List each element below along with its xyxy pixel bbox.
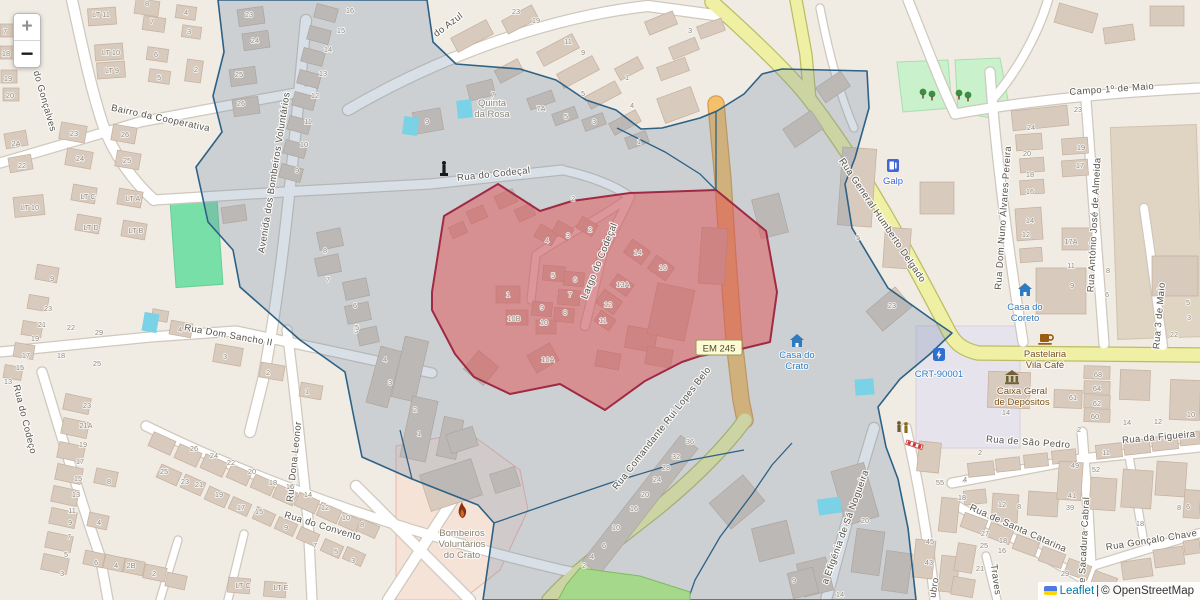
house-number: 5: [581, 89, 585, 98]
house-number: 21: [38, 320, 46, 329]
house-number: 19: [31, 334, 39, 343]
house-number: 18: [2, 49, 10, 58]
house-number: 8: [1017, 502, 1021, 511]
fuel-icon: [887, 159, 899, 172]
house-number: 45: [926, 537, 934, 546]
house-number: 2: [978, 448, 982, 457]
house-number: 5: [564, 112, 568, 121]
house-number: 10B: [507, 314, 520, 323]
water-area: [456, 99, 473, 118]
house-number: 11: [1102, 448, 1110, 457]
statue-icon-part: [442, 165, 445, 173]
house-number: 4: [178, 325, 182, 334]
house-number: 3: [566, 231, 570, 240]
house-number: 1: [506, 290, 510, 299]
house-number: 8: [107, 477, 111, 486]
house-number: 28: [662, 463, 670, 472]
house-number: 15: [337, 26, 345, 35]
house-number: 25: [123, 156, 131, 165]
house-number: 5: [856, 233, 860, 242]
poi-label: Coreto: [1011, 313, 1040, 324]
house-number: 9: [425, 117, 429, 126]
house-number: 3: [592, 117, 596, 126]
house-number: 5: [157, 73, 161, 82]
house-number: 10A: [541, 355, 554, 364]
house-number: 2: [413, 405, 417, 414]
house-number: 21: [976, 564, 984, 573]
house-number: 36: [686, 437, 694, 446]
house-number: 29: [1061, 569, 1069, 578]
house-number: 60: [1091, 412, 1099, 421]
house-number: 3: [688, 26, 692, 35]
map-building: [1150, 6, 1184, 26]
map-building: [1155, 461, 1187, 497]
house-number: 18: [999, 536, 1007, 545]
house-number: LT 9: [105, 66, 119, 75]
house-number: 18: [958, 493, 966, 502]
ukraine-flag-icon: [1044, 586, 1057, 595]
house-number: 5: [551, 271, 555, 280]
house-number: 16: [346, 6, 354, 15]
poi-label: Pastelaria: [1024, 349, 1067, 360]
house-number: 10: [300, 140, 308, 149]
house-number: 8: [563, 308, 567, 317]
house-number: 15: [74, 474, 82, 483]
house-number: 9: [68, 518, 72, 527]
house-number: 23: [512, 7, 520, 16]
house-number: 21: [195, 480, 203, 489]
house-number: 14: [1123, 418, 1131, 427]
poi-label: Caixa Geral: [997, 386, 1047, 397]
house-number: 5: [64, 550, 68, 559]
house-number: 7A: [536, 104, 545, 113]
poi-label: Crato: [785, 361, 808, 372]
house-number: LT A: [126, 194, 141, 203]
house-number: 12: [1154, 417, 1162, 426]
house-number: 12: [321, 503, 329, 512]
house-number: 8: [145, 0, 149, 8]
house-number: 4: [545, 236, 549, 245]
poi-label: de Depósitos: [994, 397, 1050, 408]
house-number: 17: [237, 503, 245, 512]
bank-icon-part: [1006, 376, 1009, 382]
house-number: 3: [187, 27, 191, 36]
house-number: 4: [963, 475, 967, 484]
house-number: 2: [588, 225, 592, 234]
house-number: 41: [1068, 491, 1076, 500]
poi-label: Quinta: [478, 98, 507, 109]
house-number: 17: [76, 457, 84, 466]
poi-label: do Crato: [444, 550, 480, 561]
house-number: 2: [582, 561, 586, 570]
house-number: 13: [319, 69, 327, 78]
house-number: 22: [18, 161, 26, 170]
trees-icon-part: [958, 95, 960, 100]
house-number: 6: [1186, 502, 1190, 511]
fuel-icon-part: [895, 163, 897, 169]
zoom-out-button[interactable]: −: [14, 41, 40, 67]
house-number: 23: [181, 477, 189, 486]
house-number: 11: [304, 117, 312, 126]
house-number: 19: [79, 440, 87, 449]
house-number: 2: [152, 569, 156, 578]
map-building: [1089, 477, 1117, 511]
house-number: 21A: [79, 421, 92, 430]
house-number: 4: [590, 552, 594, 561]
poi-label: Vila Café: [1026, 360, 1064, 371]
poi-label: Galp: [883, 176, 903, 187]
map-canvas[interactable]: EM 245do GonçalvesBairro da Cooperativad…: [0, 0, 1200, 600]
house-number: 49: [1071, 461, 1079, 470]
house-number: 5: [334, 547, 338, 556]
house-number: 18: [269, 478, 277, 487]
house-number: 16: [286, 482, 294, 491]
road-ref-text: EM 245: [703, 344, 736, 355]
house-number: LT E: [274, 583, 289, 592]
house-number: 11: [599, 316, 607, 325]
house-number: 17: [22, 351, 30, 360]
house-number: 6: [154, 50, 158, 59]
house-number: 16: [630, 504, 638, 513]
house-number: 12: [1022, 230, 1030, 239]
house-number: 15: [16, 363, 24, 372]
house-number: LT 11: [92, 10, 110, 19]
house-number: 3: [223, 352, 227, 361]
house-number: 3: [388, 378, 392, 387]
house-number: 18: [1026, 170, 1034, 179]
house-number: 14: [634, 248, 642, 257]
map-building: [938, 497, 959, 533]
house-number: 2: [571, 194, 575, 203]
attribution-bar: Leaflet|© OpenStreetMap: [1038, 582, 1200, 600]
house-number: 19: [1077, 143, 1085, 152]
house-number: 12: [604, 300, 612, 309]
house-number: 10: [540, 318, 548, 327]
peds-icon-part: [897, 425, 900, 432]
house-number: 3: [351, 556, 355, 565]
water-area: [817, 496, 842, 515]
house-number: 9: [1070, 281, 1074, 290]
house-number: 11: [1067, 261, 1075, 270]
house-number: 10: [1187, 410, 1195, 419]
house-number: 25: [160, 467, 168, 476]
house-number: 19: [215, 490, 223, 499]
house-number: 17: [1076, 161, 1084, 170]
house-number: 16: [1026, 187, 1034, 196]
house-number: 2: [1077, 425, 1081, 434]
house-number: 1: [417, 429, 421, 438]
statue-icon-part: [442, 161, 446, 165]
house-number: 23: [245, 10, 253, 19]
house-number: 14: [324, 45, 332, 54]
house-number: LT C: [80, 192, 96, 201]
house-number: 18: [57, 351, 65, 360]
map-building: [967, 461, 994, 478]
house-number: 22: [1170, 330, 1178, 339]
house-icon-part: [1024, 292, 1027, 296]
leaflet-link[interactable]: Leaflet: [1060, 585, 1095, 597]
house-number: 9: [50, 274, 54, 283]
house-number: 5: [1186, 298, 1190, 307]
house-number: 23: [1074, 105, 1082, 114]
house-number: 9: [284, 523, 288, 532]
map-building: [1169, 379, 1200, 420]
house-number: 7: [326, 275, 330, 284]
house-number: 11: [68, 506, 76, 515]
map-svg: EM 245do GonçalvesBairro da Cooperativad…: [0, 0, 1200, 600]
aed-icon: [933, 348, 945, 361]
house-number: 29: [95, 328, 103, 337]
house-number: 22: [67, 323, 75, 332]
house-number: 20: [6, 91, 14, 100]
house-number: 20: [248, 467, 256, 476]
water-area: [402, 116, 419, 136]
water-area: [854, 378, 874, 395]
house-number: 4: [383, 355, 387, 364]
house-number: 25: [980, 541, 988, 550]
house-number: 55: [936, 478, 944, 487]
map-building: [995, 457, 1020, 472]
map-building: [1119, 369, 1150, 400]
house-number: 68: [1094, 370, 1102, 379]
peds-icon-part: [897, 421, 901, 425]
osm-credit-link[interactable]: © OpenStreetMap: [1101, 585, 1194, 597]
house-number: 1: [305, 387, 309, 396]
map-building: [1023, 453, 1048, 468]
house-number: 2: [266, 368, 270, 377]
house-number: 39: [1066, 503, 1074, 512]
map-building: [181, 25, 201, 40]
house-number: 11: [564, 37, 572, 46]
house-number: 23: [44, 304, 52, 313]
house-number: 20: [861, 516, 869, 525]
house-number: 24: [251, 36, 259, 45]
house-number: LT 10: [21, 203, 39, 212]
map-building: [1020, 247, 1043, 263]
zoom-in-button[interactable]: +: [14, 14, 40, 41]
house-number: 6: [1105, 290, 1109, 299]
map-building: [1027, 491, 1059, 517]
house-number: 16: [998, 546, 1006, 555]
house-number: 26: [190, 444, 198, 453]
house-number: 5: [355, 323, 359, 332]
house-number: 19: [4, 74, 12, 83]
house-number: 23: [888, 301, 896, 310]
house-number: 4: [630, 101, 634, 110]
house-number: 20: [1023, 149, 1031, 158]
house-number: 25: [93, 359, 101, 368]
bank-icon-part: [1011, 376, 1014, 382]
house-number: 62: [1093, 399, 1101, 408]
house-number: 7: [3, 27, 7, 36]
house-number: 7: [568, 290, 572, 299]
house-number: 6: [573, 275, 577, 284]
house-number: 26: [121, 130, 129, 139]
house-number: 2A: [11, 139, 20, 148]
fuel-icon-part: [890, 162, 895, 170]
house-number: 2B: [126, 561, 135, 570]
house-number: 43: [925, 558, 933, 567]
house-number: 10: [612, 523, 620, 532]
house-number: 9: [295, 166, 299, 175]
house-number: 13A: [616, 280, 629, 289]
map-building: [1153, 546, 1185, 568]
house-number: 3: [60, 569, 64, 578]
house-number: 7: [313, 541, 317, 550]
house-number: 8: [1106, 266, 1110, 275]
poi-label: Voluntários: [438, 539, 485, 550]
house-number: 24: [210, 451, 218, 460]
house-number: 25: [235, 70, 243, 79]
house-number: 27: [981, 529, 989, 538]
bank-icon-part: [1016, 376, 1019, 382]
house-number: LT D: [83, 223, 98, 232]
house-number: 61: [1069, 393, 1077, 402]
house-number: 3: [1187, 313, 1191, 322]
house-number: 64: [1093, 384, 1101, 393]
house-number: 8: [1177, 503, 1181, 512]
house-number: 9: [540, 303, 544, 312]
map-building: [951, 576, 976, 598]
house-number: 24: [1027, 123, 1035, 132]
house-number: 32: [672, 452, 680, 461]
house-number: 8: [360, 520, 364, 529]
house-number: LT C: [235, 581, 251, 590]
house-number: 8: [323, 246, 327, 255]
house-number: 14: [1026, 216, 1034, 225]
map-building: [1183, 539, 1200, 555]
house-number: 24: [653, 475, 661, 484]
house-number: LT 10: [102, 48, 120, 57]
house-number: 13: [4, 377, 12, 386]
house-number: 12: [311, 91, 319, 100]
house-number: 19: [532, 16, 540, 25]
peds-icon-part: [904, 422, 908, 426]
house-number: 26: [237, 99, 245, 108]
house-number: 9: [581, 48, 585, 57]
house-number: 17A: [1064, 237, 1077, 246]
trees-icon-part: [967, 97, 969, 102]
zoom-control: + −: [13, 13, 41, 68]
map-building: [1036, 268, 1086, 314]
peds-icon-part: [904, 426, 907, 433]
map-building: [920, 182, 954, 214]
house-number: 4: [184, 8, 188, 17]
poi-label: Casa do: [779, 350, 814, 361]
house-number: 4: [114, 561, 118, 570]
trees-icon-part: [922, 94, 924, 99]
house-number: 10: [342, 513, 350, 522]
poi-label: Bombeiros: [439, 528, 485, 539]
house-number: 6: [94, 558, 98, 567]
house-number: 13: [72, 490, 80, 499]
house-number: 20: [641, 490, 649, 499]
house-number: LT B: [129, 226, 144, 235]
house-number: 24: [76, 154, 84, 163]
map-building: [1121, 558, 1153, 580]
house-number: 23: [70, 129, 78, 138]
house-number: 1: [637, 137, 641, 146]
house-number: 2: [194, 65, 198, 74]
house-number: 23: [83, 401, 91, 410]
house-number: 14: [304, 490, 312, 499]
house-number: 6: [353, 301, 357, 310]
house-number: 9: [792, 576, 796, 585]
cup-icon-part: [1038, 343, 1052, 345]
house-number: 14: [1002, 408, 1010, 417]
house-number: 7: [67, 532, 71, 541]
poi-label: da Rosa: [474, 109, 510, 120]
house-number: 22: [227, 458, 235, 467]
house-number: 14: [836, 590, 844, 599]
poi-label: Casa do: [1007, 302, 1042, 313]
house-number: 16: [659, 263, 667, 272]
house-number: 52: [1092, 465, 1100, 474]
house-icon-part: [796, 343, 799, 347]
cup-icon: [1038, 334, 1053, 345]
house-number: 6: [602, 541, 606, 550]
bank-icon-part: [1005, 382, 1019, 384]
trees-icon-part: [931, 96, 933, 101]
house-number: 18: [1136, 519, 1144, 528]
house-number: 12: [998, 500, 1006, 509]
map-building: [1121, 469, 1154, 509]
house-number: 7: [150, 17, 154, 26]
poi-label: CRT-90001: [915, 369, 963, 380]
statue-icon-part: [440, 173, 448, 176]
house-number: 4: [97, 518, 101, 527]
house-number: 15: [255, 507, 263, 516]
house-number: 1: [625, 73, 629, 82]
